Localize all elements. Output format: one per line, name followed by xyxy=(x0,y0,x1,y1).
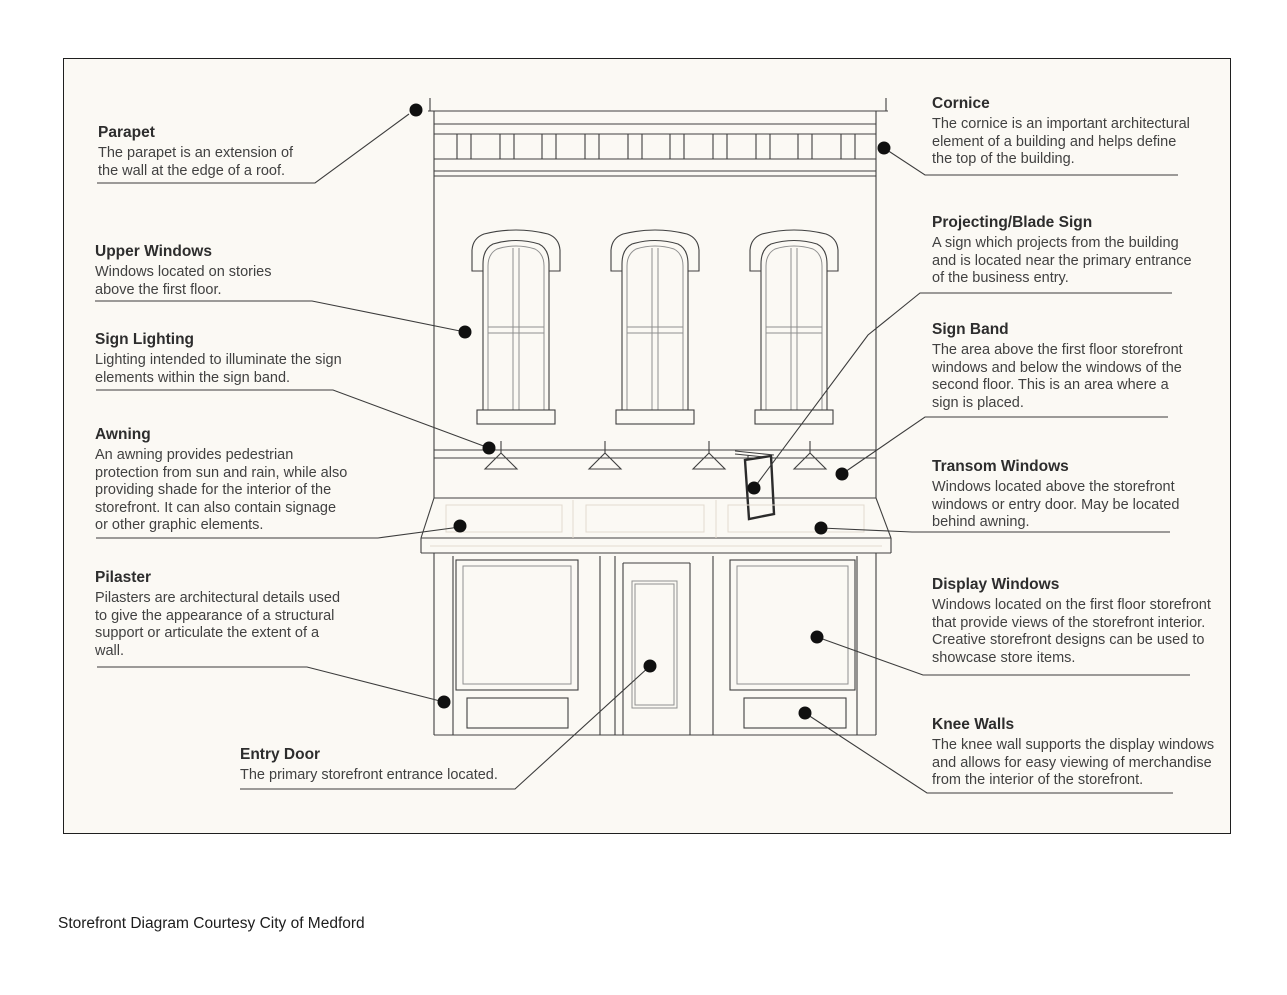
callout-dot-pilaster xyxy=(438,696,451,709)
sign-lamp-3 xyxy=(693,441,725,469)
callout-dot-sign-band xyxy=(836,468,849,481)
label-transom-windows-title: Transom Windows xyxy=(932,458,1187,476)
label-sign-lighting: Sign Lighting Lighting intended to illum… xyxy=(95,331,347,387)
label-awning-title: Awning xyxy=(95,426,350,444)
label-display-windows-body: Windows located on the first floor store… xyxy=(932,597,1224,667)
entry-door-shape xyxy=(623,563,690,735)
upper-window-1 xyxy=(472,230,560,424)
storefront-diagram-page: Parapet The parapet is an extension of t… xyxy=(0,0,1287,995)
figure-caption: Storefront Diagram Courtesy City of Medf… xyxy=(58,915,365,933)
parapet-cap xyxy=(428,98,888,111)
label-entry-door-title: Entry Door xyxy=(240,746,540,764)
label-parapet-body: The parapet is an extension of the wall … xyxy=(98,145,316,180)
sign-lamp-2 xyxy=(589,441,621,469)
label-upper-windows-body: Windows located on stories above the fir… xyxy=(95,264,295,299)
callout-dot-entry-door xyxy=(644,660,657,673)
callout-dots xyxy=(410,104,891,720)
display-window-left xyxy=(456,560,578,728)
callout-dot-upper-windows xyxy=(459,326,472,339)
cornice-dentils xyxy=(457,134,855,159)
label-knee-walls-body: The knee wall supports the display windo… xyxy=(932,737,1224,790)
callout-dot-blade-sign xyxy=(748,482,761,495)
label-knee-walls-title: Knee Walls xyxy=(932,716,1224,734)
storefront xyxy=(434,553,876,735)
label-cornice-title: Cornice xyxy=(932,95,1200,113)
label-entry-door-body: The primary storefront entrance located. xyxy=(240,767,540,785)
cornice-band xyxy=(434,124,876,176)
callout-dot-knee-walls xyxy=(799,707,812,720)
label-parapet-title: Parapet xyxy=(98,124,316,142)
label-display-windows: Display Windows Windows located on the f… xyxy=(932,576,1224,667)
label-cornice: Cornice The cornice is an important arch… xyxy=(932,95,1200,169)
callout-dot-sign-lighting xyxy=(483,442,496,455)
label-awning-body: An awning provides pedestrian protection… xyxy=(95,447,350,535)
pilaster-right xyxy=(857,553,876,735)
label-transom-windows-body: Windows located above the storefront win… xyxy=(932,479,1187,532)
label-pilaster-title: Pilaster xyxy=(95,569,340,587)
callout-dot-cornice xyxy=(878,142,891,155)
label-sign-band-title: Sign Band xyxy=(932,321,1184,339)
label-sign-band: Sign Band The area above the first floor… xyxy=(932,321,1184,412)
callout-dot-parapet xyxy=(410,104,423,117)
label-pilaster-body: Pilasters are architectural details used… xyxy=(95,590,340,660)
upper-window-3 xyxy=(750,230,838,424)
leader-pilaster xyxy=(97,667,444,702)
label-entry-door: Entry Door The primary storefront entran… xyxy=(240,746,540,785)
upper-window-2 xyxy=(611,230,699,424)
label-cornice-body: The cornice is an important architectura… xyxy=(932,116,1200,169)
label-projecting-blade-sign: Projecting/Blade Sign A sign which proje… xyxy=(932,214,1194,288)
label-upper-windows-title: Upper Windows xyxy=(95,243,295,261)
label-awning: Awning An awning provides pedestrian pro… xyxy=(95,426,350,535)
callout-dot-transom xyxy=(815,522,828,535)
sign-lamp-4 xyxy=(794,441,826,469)
label-display-windows-title: Display Windows xyxy=(932,576,1224,594)
label-pilaster: Pilaster Pilasters are architectural det… xyxy=(95,569,340,660)
label-projecting-blade-sign-title: Projecting/Blade Sign xyxy=(932,214,1194,232)
label-projecting-blade-sign-body: A sign which projects from the building … xyxy=(932,235,1194,288)
label-transom-windows: Transom Windows Windows located above th… xyxy=(932,458,1187,532)
callout-dot-awning xyxy=(454,520,467,533)
label-upper-windows: Upper Windows Windows located on stories… xyxy=(95,243,295,299)
label-sign-lighting-title: Sign Lighting xyxy=(95,331,347,349)
label-sign-band-body: The area above the first floor storefron… xyxy=(932,342,1184,412)
callout-dot-display xyxy=(811,631,824,644)
label-parapet: Parapet The parapet is an extension of t… xyxy=(98,124,316,180)
label-knee-walls: Knee Walls The knee wall supports the di… xyxy=(932,716,1224,790)
label-sign-lighting-body: Lighting intended to illuminate the sign… xyxy=(95,352,347,387)
leader-upper-windows xyxy=(95,301,465,332)
